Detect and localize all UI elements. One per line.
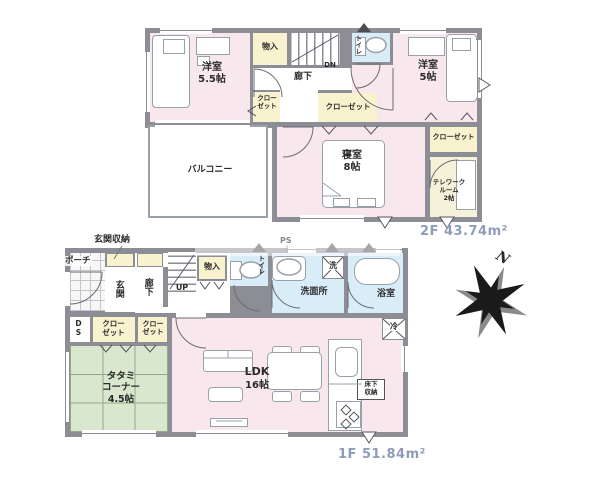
stove-icon <box>336 401 361 428</box>
closet-small-label-2f: クローゼット <box>257 95 277 111</box>
compass-icon <box>435 245 545 355</box>
pillow-icon <box>357 198 376 207</box>
bathroom-label: 浴室 <box>369 289 403 300</box>
sliding-window <box>155 120 250 128</box>
window <box>62 352 69 422</box>
toilet-label-1f: トイレ <box>256 255 264 275</box>
chair-icon <box>300 391 320 402</box>
room-label-telework: テレワークルーム2帖 <box>426 179 472 202</box>
stairs-up-label: UP <box>170 283 194 293</box>
hallway-label-2f: 廊下 <box>288 72 318 83</box>
window <box>474 40 481 98</box>
tv-stand-icon <box>210 418 248 427</box>
floor2-area-label: 2F 43.74m² <box>420 224 508 239</box>
desk-icon <box>196 37 230 55</box>
window <box>400 27 446 34</box>
entrance-storage-box <box>106 253 134 267</box>
storage-label-2f: 物入 <box>253 42 287 52</box>
kitchen-sink-icon <box>335 347 358 377</box>
window <box>401 346 408 372</box>
hallway-2f-lower <box>280 90 318 122</box>
washer-label: 洗 <box>324 261 342 271</box>
desk-icon <box>408 37 445 56</box>
closet-a-label-1f: クローゼット <box>102 319 125 337</box>
window <box>143 52 150 112</box>
storage-label-1f: 物入 <box>198 262 226 272</box>
balcony-label: バルコニー <box>168 165 252 176</box>
watermark <box>195 238 400 256</box>
tatami-corner-label: タタミコーナー4.5帖 <box>90 371 152 405</box>
window <box>300 215 364 222</box>
entrance-label: 玄関 <box>113 280 124 298</box>
sliding-window <box>196 430 288 437</box>
underfloor-storage-label: 床下収納 <box>364 381 378 397</box>
porch-label: ポーチ <box>64 256 92 266</box>
closet-right-label-2f: クローゼット <box>430 133 477 141</box>
hallway-label-1f: 廊下 <box>142 278 153 296</box>
fridge-label: 冷 <box>385 322 403 332</box>
stairs-dn-label: DN <box>319 61 341 69</box>
pillow-icon <box>452 38 471 51</box>
room-label-western-b: 洋室5帖 <box>402 60 454 84</box>
room-label-bedroom: 寝室8帖 <box>327 150 377 174</box>
pillow-icon <box>333 198 350 207</box>
window <box>160 27 212 34</box>
closet-b-label-1f: クローゼット <box>142 320 164 337</box>
chair-icon <box>272 391 292 402</box>
compass-north-label: N <box>493 248 512 269</box>
bathtub-icon <box>354 258 400 285</box>
entrance-storage-label: 玄関収納 <box>94 235 130 246</box>
closet-wide-label-2f: クローゼット <box>320 102 376 111</box>
washroom-label: 洗面所 <box>293 287 335 298</box>
ds-label: DS <box>74 319 83 337</box>
toilet-tank-icon <box>230 261 242 280</box>
vanity-sink-icon <box>272 256 306 281</box>
porch-entry-gap <box>62 272 70 306</box>
pillow-icon <box>163 39 185 54</box>
ps-label: PS <box>280 236 292 246</box>
floor1-area-label: 1F 51.84m² <box>338 447 426 462</box>
ldk-door-gap <box>176 313 206 318</box>
ldk-label: LDK16帖 <box>226 365 288 392</box>
window <box>82 430 156 437</box>
room-label-western-a: 洋室5.5帖 <box>184 62 240 86</box>
toilet-label-2f: トイレ <box>353 35 361 55</box>
entrance-storage-box <box>137 253 163 267</box>
